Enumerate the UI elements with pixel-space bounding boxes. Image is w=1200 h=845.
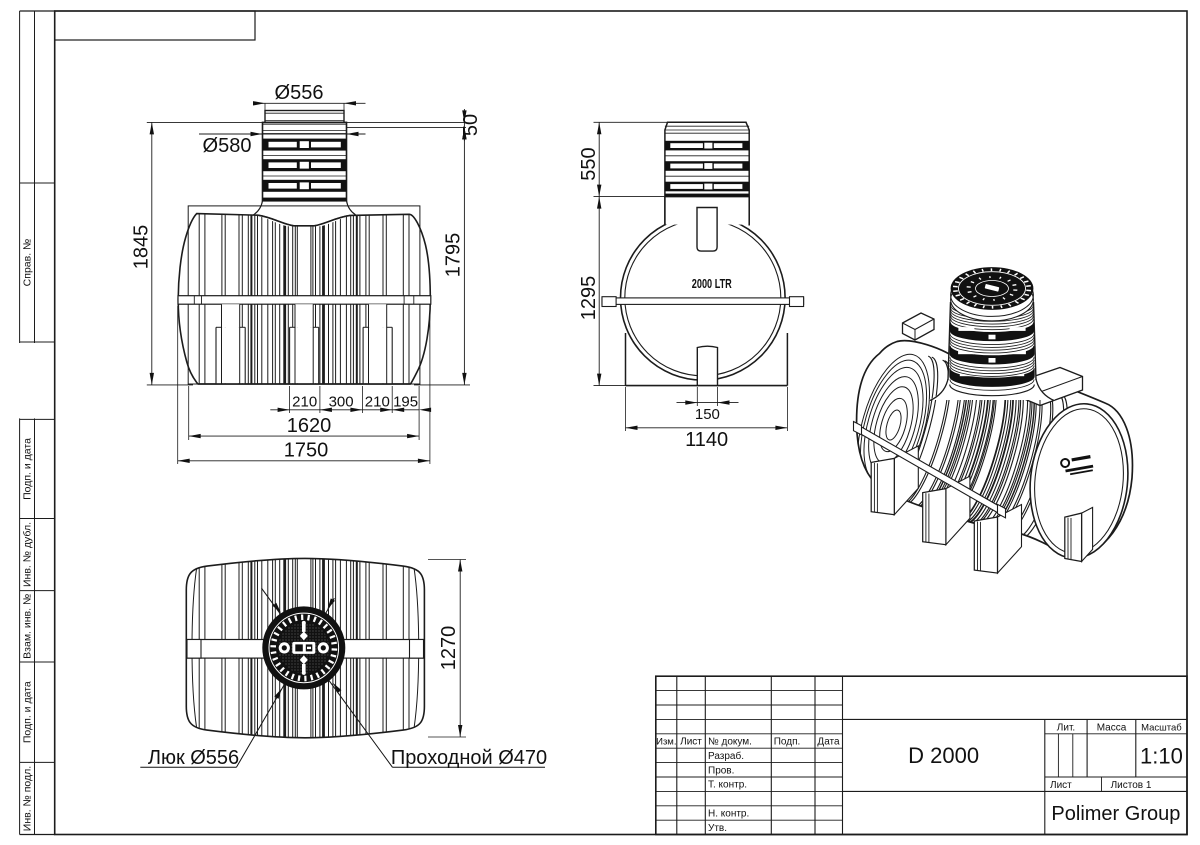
svg-text:Инв. № дубл.: Инв. № дубл.	[22, 522, 34, 587]
svg-text:2000 LTR: 2000 LTR	[692, 276, 732, 291]
svg-text:300: 300	[329, 394, 354, 411]
svg-text:Справ. №: Справ. №	[22, 239, 34, 287]
svg-text:1270: 1270	[438, 626, 460, 671]
svg-text:Взам. инв. №: Взам. инв. №	[22, 594, 34, 659]
svg-text:Изм.: Изм.	[656, 737, 676, 748]
svg-text:Подп.: Подп.	[774, 737, 801, 748]
svg-text:1845: 1845	[131, 225, 153, 270]
svg-text:550: 550	[578, 147, 600, 180]
svg-text:Масштаб: Масштаб	[1141, 722, 1182, 733]
svg-text:1295: 1295	[578, 276, 600, 321]
svg-text:1620: 1620	[287, 415, 332, 437]
svg-text:№ докум.: № докум.	[708, 737, 752, 748]
svg-text:1795: 1795	[443, 233, 465, 278]
svg-text:Разраб.: Разраб.	[708, 750, 744, 762]
svg-text:Пров.: Пров.	[708, 765, 734, 776]
svg-text:Утв.: Утв.	[708, 823, 727, 834]
svg-text:Лист: Лист	[680, 737, 702, 748]
svg-text:Подп. и дата: Подп. и дата	[22, 438, 34, 500]
svg-text:1140: 1140	[685, 429, 728, 451]
svg-text:50: 50	[460, 114, 482, 136]
svg-text:Проходной Ø470: Проходной Ø470	[391, 747, 547, 769]
svg-text:Н. контр.: Н. контр.	[708, 809, 749, 820]
svg-text:Ø580: Ø580	[203, 135, 252, 157]
svg-text:1750: 1750	[284, 440, 329, 462]
svg-text:Лист: Лист	[1050, 780, 1072, 791]
svg-text:Лит.: Лит.	[1057, 722, 1075, 733]
svg-text:1:10: 1:10	[1140, 744, 1183, 769]
svg-text:Ø556: Ø556	[275, 82, 324, 104]
svg-text:195: 195	[393, 394, 418, 411]
svg-text:Масса: Масса	[1097, 722, 1127, 733]
svg-text:Люк Ø556: Люк Ø556	[148, 747, 239, 769]
svg-text:Дата: Дата	[817, 737, 840, 748]
svg-text:Т. контр.: Т. контр.	[708, 780, 747, 791]
svg-text:Листов 1: Листов 1	[1111, 780, 1152, 791]
svg-text:Подп. и дата: Подп. и дата	[22, 681, 34, 743]
svg-text:D 2000: D 2000	[908, 743, 979, 768]
svg-text:150: 150	[695, 406, 720, 423]
svg-text:210: 210	[365, 394, 390, 411]
svg-text:210: 210	[292, 394, 317, 411]
svg-text:Polimer Group: Polimer Group	[1051, 803, 1180, 825]
svg-text:Инв. № подл.: Инв. № подл.	[22, 766, 34, 831]
